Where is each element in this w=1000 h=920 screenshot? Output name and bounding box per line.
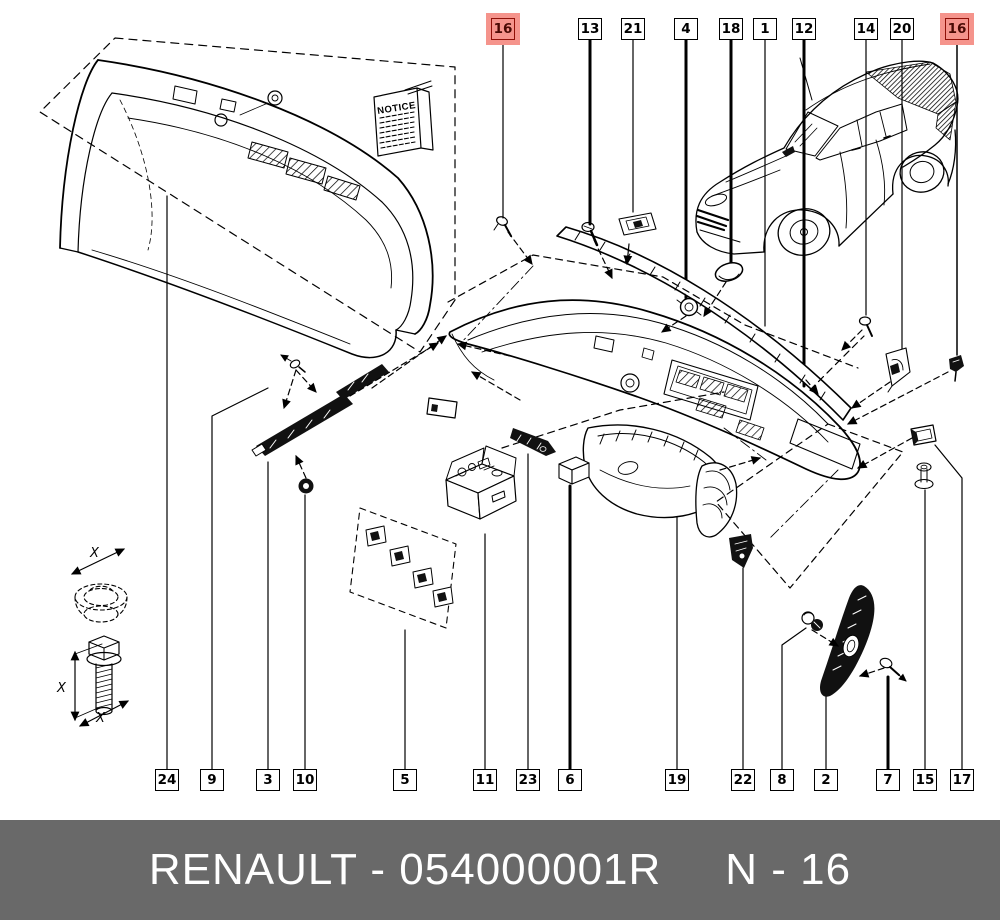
- callout-number: 5: [400, 772, 409, 788]
- callout-number: 8: [777, 772, 786, 788]
- expander-16-right: [949, 355, 964, 381]
- callout-top-4[interactable]: 4: [674, 18, 698, 40]
- callout-number: 14: [857, 21, 876, 37]
- callout-bottom-24[interactable]: 24: [155, 769, 179, 791]
- callout-number: 7: [883, 772, 892, 788]
- oval-pad-18: [713, 260, 745, 285]
- diagram-art: NOTICE: [0, 0, 1000, 820]
- reference-hardware: [72, 549, 128, 726]
- bracket-2: [820, 585, 874, 697]
- callout-number: 11: [476, 772, 495, 788]
- callout-top-12[interactable]: 12: [792, 18, 816, 40]
- callout-number: 16: [948, 21, 967, 37]
- callout-bottom-8[interactable]: 8: [770, 769, 794, 791]
- callout-number: 16: [494, 21, 513, 37]
- foam-block-6: [559, 457, 589, 484]
- callout-number: 13: [581, 21, 600, 37]
- callout-bottom-2[interactable]: 2: [814, 769, 838, 791]
- callout-number: 12: [795, 21, 814, 37]
- callout-number: 22: [734, 772, 753, 788]
- reference-nut: [75, 584, 127, 622]
- car-sketch: [696, 58, 958, 261]
- exploded-bumper: [427, 227, 903, 588]
- callout-bottom-6[interactable]: 6: [558, 769, 582, 791]
- callout-number: 24: [158, 772, 177, 788]
- parts-diagram-page: NOTICE: [0, 0, 1000, 920]
- callout-number: 18: [722, 21, 741, 37]
- clip-17: [911, 425, 936, 445]
- footer-page-ref: N - 16: [725, 845, 851, 895]
- callout-number: 2: [821, 772, 830, 788]
- callout-top-1[interactable]: 1: [753, 18, 777, 40]
- callout-bottom-17[interactable]: 17: [950, 769, 974, 791]
- rivet-15: [915, 463, 933, 489]
- callout-bottom-9[interactable]: 9: [200, 769, 224, 791]
- callout-bottom-10[interactable]: 10: [293, 769, 317, 791]
- callout-top-14[interactable]: 14: [854, 18, 878, 40]
- mudflap-22: [729, 534, 753, 568]
- callout-top-18[interactable]: 18: [719, 18, 743, 40]
- callout-top-20[interactable]: 20: [890, 18, 914, 40]
- callout-number: 4: [681, 21, 690, 37]
- callout-number: 17: [953, 772, 972, 788]
- kit-box-11: [446, 446, 516, 519]
- callout-bottom-19[interactable]: 19: [665, 769, 689, 791]
- clip-set-5: [350, 508, 456, 628]
- callout-number: 10: [296, 772, 315, 788]
- screw-14: [860, 317, 873, 336]
- bumper-corner-cap: [696, 463, 737, 537]
- callout-number: 21: [624, 21, 643, 37]
- callout-bottom-11[interactable]: 11: [473, 769, 497, 791]
- callout-bottom-3[interactable]: 3: [256, 769, 280, 791]
- callout-top-21[interactable]: 21: [621, 18, 645, 40]
- callout-bottom-15[interactable]: 15: [913, 769, 937, 791]
- callout-number: 20: [893, 21, 912, 37]
- callout-top-16-left[interactable]: 16: [491, 18, 515, 40]
- dimension-x-spacer: X: [89, 546, 100, 561]
- callout-number: 9: [207, 772, 216, 788]
- bracket-20: [886, 348, 910, 392]
- callout-number: 6: [565, 772, 574, 788]
- dimension-x-end: X: [95, 711, 106, 726]
- dimension-x-length: X: [56, 681, 67, 696]
- callout-top-16-right[interactable]: 16: [945, 18, 969, 40]
- callout-bottom-7[interactable]: 7: [876, 769, 900, 791]
- footer-part-number: RENAULT - 054000001R: [149, 845, 661, 895]
- callout-number: 3: [263, 772, 272, 788]
- assembled-bumper-view: [40, 38, 455, 358]
- notice-booklet: NOTICE: [374, 81, 433, 156]
- callout-bottom-23[interactable]: 23: [516, 769, 540, 791]
- callout-bottom-22[interactable]: 22: [731, 769, 755, 791]
- callout-bottom-5[interactable]: 5: [393, 769, 417, 791]
- callout-number: 1: [760, 21, 769, 37]
- callout-top-13[interactable]: 13: [578, 18, 602, 40]
- callout-number: 23: [519, 772, 538, 788]
- side-rails: [252, 355, 389, 494]
- callout-number: 19: [668, 772, 687, 788]
- sensor-23: [510, 428, 556, 456]
- footer-bar: RENAULT - 054000001R N - 16: [0, 820, 1000, 920]
- callout-number: 15: [916, 772, 935, 788]
